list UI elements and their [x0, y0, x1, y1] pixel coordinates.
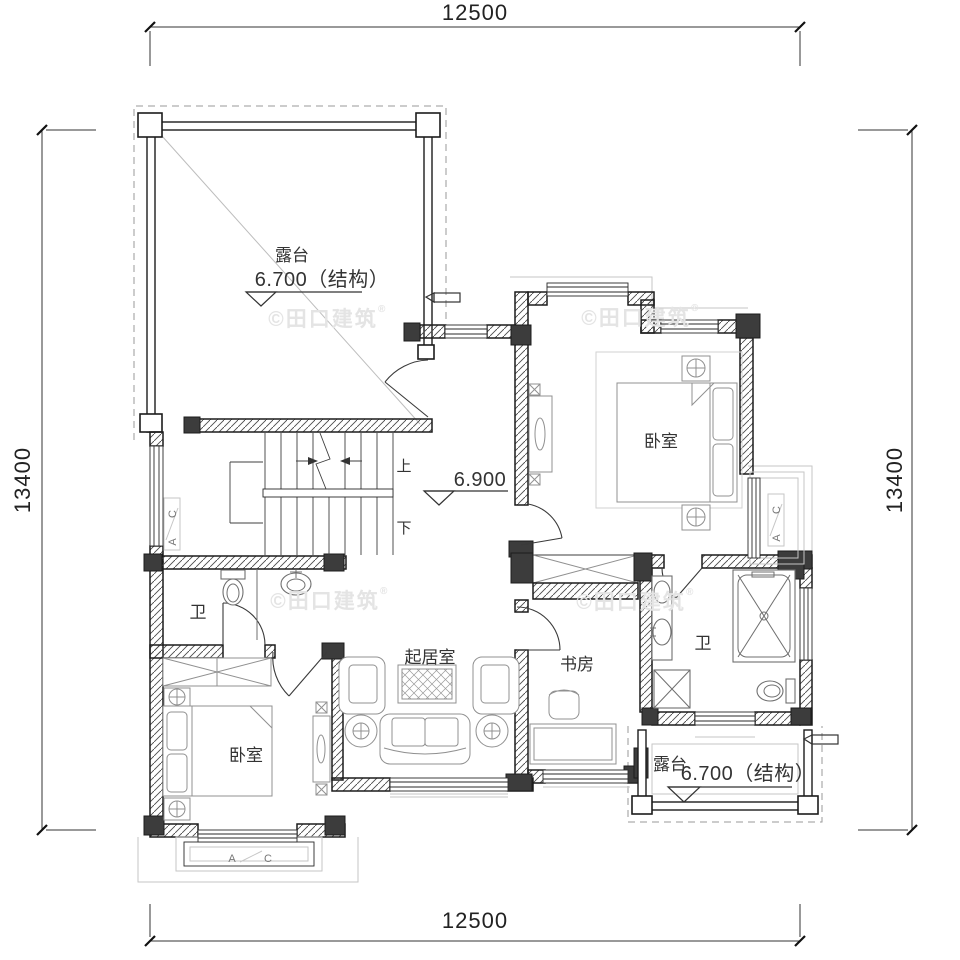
- furniture-study: [530, 690, 616, 764]
- terrace-post-bottomleft: [140, 414, 162, 432]
- svg-text:©田口建筑: ©田口建筑: [576, 590, 685, 614]
- study-chair: [549, 691, 579, 719]
- watermark-3: ©田口建筑 ®: [270, 586, 388, 613]
- window-living-south: [390, 778, 508, 791]
- terraceB-post-left: [632, 796, 652, 814]
- terraceB-flag-marker: [812, 735, 838, 744]
- bedroomL-dresser: [313, 716, 330, 782]
- terrace-bottom-elevation-marker: 6.700（结构）: [668, 762, 815, 802]
- stair-handrail: [263, 489, 393, 497]
- bedroomL-pillow1: [167, 712, 187, 750]
- dim-bottom-value: 12500: [442, 908, 508, 933]
- svg-text:®: ®: [380, 586, 388, 597]
- terrace-top-label: 露台: [275, 246, 309, 265]
- svg-text:®: ®: [691, 303, 699, 314]
- window-tag-right-bay: C A: [768, 494, 784, 546]
- dimension-bottom: 12500: [145, 904, 805, 946]
- study-desk: [530, 724, 616, 764]
- svg-text:©田口建筑: ©田口建筑: [268, 307, 377, 331]
- bedroomL-label: 卧室: [229, 746, 263, 765]
- bathR-sink-2: [653, 619, 671, 645]
- living-armchair-left: [339, 657, 385, 714]
- svg-text:A: A: [228, 853, 236, 865]
- terrace-post-topright: [416, 113, 440, 137]
- svg-text:®: ®: [686, 587, 694, 598]
- window-bathR-east: [800, 588, 812, 660]
- terrace-parapet-right: [424, 122, 432, 357]
- watermark-4: ©田口建筑 ®: [576, 587, 694, 614]
- terrace-top-elevation-marker: 6.700（结构）: [246, 268, 389, 306]
- wall-hall-north-a: [420, 325, 445, 338]
- terrace-parapet-top: [147, 122, 432, 130]
- hall-elevation-marker: 6.900: [424, 469, 508, 505]
- living-armchair-right: [473, 657, 519, 714]
- svg-text:C: C: [264, 853, 272, 865]
- door-bedroomR: [521, 504, 562, 545]
- door-study: [517, 607, 560, 650]
- door-bedroomL: [273, 652, 327, 696]
- bay-window-bedroomR-east: [748, 472, 804, 564]
- svg-text:C: C: [771, 506, 783, 514]
- bedroomR-pillow2: [713, 444, 733, 496]
- terrace-top-elevation: 6.700（结构）: [255, 268, 390, 291]
- window-study-south: [543, 770, 628, 783]
- wall-bathL-south-a: [150, 645, 223, 658]
- living-coffee-table-top: [402, 669, 452, 699]
- living-label: 起居室: [405, 648, 456, 667]
- furniture-living: [339, 657, 519, 764]
- terraceB-parapet-left: [638, 730, 646, 802]
- terrace-bottom-elevation: 6.700（结构）: [681, 762, 816, 785]
- terrace-flag-marker: [434, 293, 460, 302]
- watermark-2: ©田口建筑 ®: [581, 303, 699, 330]
- window-hall-north: [445, 325, 487, 338]
- wall-living-south-a: [332, 778, 390, 791]
- dim-right-value: 13400: [882, 447, 907, 513]
- wall-hall-south: [150, 556, 346, 569]
- terrace-parapet-left: [147, 122, 155, 432]
- dimension-top: 12500: [145, 0, 805, 66]
- terraceB-post-right: [798, 796, 818, 814]
- terraceB-parapet-bottom: [638, 802, 812, 810]
- bedroomR-pillow1: [713, 388, 733, 440]
- svg-text:A: A: [771, 534, 783, 542]
- wall-left-stub1: [150, 432, 163, 446]
- bathL-label: 卫: [190, 603, 207, 622]
- dim-top-value: 12500: [442, 0, 508, 25]
- svg-text:©田口建筑: ©田口建筑: [270, 589, 379, 613]
- bathR-label: 卫: [695, 634, 712, 653]
- window-bedroomR-north: [547, 283, 628, 296]
- svg-text:A: A: [167, 538, 179, 546]
- floor-plan-drawing: 上 下: [0, 0, 960, 960]
- door-bathL: [223, 603, 265, 645]
- wall-study-bathR: [640, 568, 652, 712]
- bathR-toilet-bowl: [757, 681, 783, 701]
- wall-bedroomR-north-a: [528, 292, 547, 305]
- furniture-bedroomR: [529, 352, 742, 530]
- bedroomL-pillow2: [167, 754, 187, 792]
- svg-text:®: ®: [378, 304, 386, 315]
- svg-text:©田口建筑: ©田口建筑: [581, 306, 690, 330]
- hall-elevation: 6.900: [454, 469, 507, 491]
- watermark-1: ©田口建筑 ®: [268, 304, 386, 331]
- dimension-right: 13400: [858, 125, 917, 835]
- svg-text:C: C: [167, 510, 179, 518]
- window-terraceB-north: [695, 712, 755, 725]
- staircase: 上 下: [230, 433, 412, 555]
- wall-study-west-stub: [515, 600, 528, 612]
- terrace-post-topleft: [138, 113, 162, 137]
- floor-plan-page: 上 下: [0, 0, 960, 960]
- furniture-bedroomL: [163, 658, 330, 820]
- wall-top-under-terrace: [186, 419, 432, 432]
- wall-left-long: [150, 562, 163, 824]
- window-tag-left: C A: [164, 498, 180, 550]
- bedroomR-wardrobe: [529, 396, 552, 472]
- dimension-left: 13400: [10, 125, 96, 835]
- stair-down-label: 下: [396, 520, 411, 537]
- study-label: 书房: [560, 655, 594, 674]
- wall-bedroomR-west: [515, 292, 528, 505]
- bathL-toilet-bowl: [223, 579, 243, 605]
- window-left-stair: [150, 446, 163, 546]
- bathR-toilet-tank: [786, 679, 795, 703]
- dim-left-value: 13400: [10, 447, 35, 513]
- stair-break-mask: [316, 433, 340, 489]
- stair-up-label: 上: [396, 458, 411, 475]
- bedroomR-label: 卧室: [644, 432, 678, 451]
- wall-bathL-south-b: [265, 645, 275, 658]
- terrace-post-midright: [418, 345, 434, 359]
- bathL-toilet-tank: [221, 570, 245, 579]
